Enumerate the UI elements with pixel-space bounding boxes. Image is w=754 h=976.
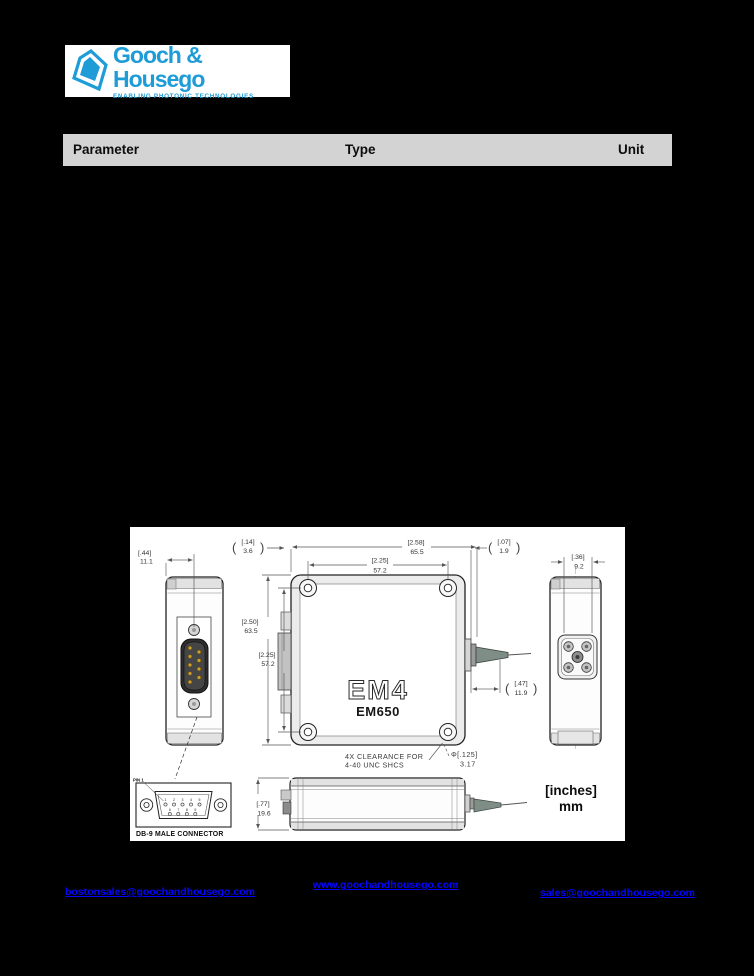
column-header-parameter: Parameter [73, 134, 139, 166]
svg-text:): ) [260, 540, 264, 555]
pin1-label: PIN 1 [133, 778, 144, 783]
hole-diameter-mm: 3.17 [460, 760, 476, 769]
dim-fiber-boot-mm: 11.9 [515, 690, 528, 697]
mechanical-drawing: [.44] 11.1 [130, 527, 625, 841]
svg-text:): ) [516, 540, 520, 555]
brand-name: Gooch & Housego [113, 43, 290, 91]
prism-diamond-icon [71, 47, 109, 96]
pin-number: 5 [199, 798, 201, 802]
dim-hole-spacing-v-mm: 57.2 [261, 661, 274, 668]
dim-body-thickness-mm: 19.6 [257, 811, 270, 818]
fiber-feedthrough-connector [558, 635, 597, 679]
pin-number: 7 [177, 808, 179, 812]
pin-number: 9 [194, 808, 196, 812]
dim-flange-protrusion: ( [.07] 1.9 ) [471, 539, 520, 639]
units-legend: [inches] mm [545, 783, 597, 814]
dim-connector-width-mm: 9.2 [574, 564, 584, 571]
side-view [281, 778, 527, 830]
dim-fiber-boot-in: [.47] [514, 681, 527, 688]
fiber-output-top-view [465, 639, 531, 671]
fiber-output-side-view [465, 795, 527, 812]
company-logo: Gooch & Housego ENABLING PHOTONIC TECHNO… [65, 45, 290, 97]
dim-lid-gap: ( [.14] 3.6 ) [232, 539, 284, 555]
end-view-fiber-side [550, 567, 601, 751]
dim-flange-protrusion-in: [.07] [497, 539, 510, 546]
units-mm: mm [559, 799, 583, 814]
top-view: EM4 EM650 [278, 575, 531, 745]
hole-diameter-callout: Φ[.125] 3.17 [444, 744, 478, 769]
svg-text:(: ( [232, 540, 237, 555]
dim-hole-spacing-v-in: [2.25] [258, 652, 275, 659]
dim-hole-spacing-h-in: [2.25] [371, 558, 388, 565]
dim-connector-width-in: [.36] [571, 554, 584, 561]
hole-diameter-in: Φ[.125] [451, 750, 478, 759]
dim-lid-gap-mm: 3.6 [243, 548, 253, 555]
dim-lid-gap-in: [.14] [241, 539, 254, 546]
dim-overall-width-mm: 65.5 [410, 549, 423, 556]
dim-flange-protrusion-mm: 1.9 [499, 548, 509, 555]
pin-number: 2 [173, 798, 175, 802]
svg-text:(: ( [488, 540, 493, 555]
dim-fiber-boot-length: ( [.47] 11.9 ) [471, 660, 537, 697]
clearance-note: 4X CLEARANCE FOR 4-40 UNC SHCS [345, 743, 443, 770]
footer-website-link[interactable]: www.goochandhousego.com [313, 879, 458, 891]
pin-number: 6 [169, 808, 171, 812]
column-header-type: Type [345, 134, 376, 166]
page: { "logo": { "brand": "Gooch & Housego", … [0, 0, 754, 976]
table-header-row: Parameter Type Unit [63, 134, 672, 166]
pin-number: 4 [190, 798, 192, 802]
dim-connector-offset-in: [.44] [138, 550, 151, 557]
db9-connector-label: DB-9 MALE CONNECTOR [136, 831, 224, 838]
brand-tagline: ENABLING PHOTONIC TECHNOLOGIES [113, 93, 290, 100]
model-label: EM650 [356, 704, 400, 719]
pin-number: 3 [182, 798, 184, 802]
end-view-connector-side [166, 577, 223, 745]
footer-email-link[interactable]: bostonsales@goochandhousego.com [65, 886, 255, 898]
dim-hole-spacing-h-mm: 57.2 [373, 568, 386, 575]
svg-text:): ) [533, 681, 537, 696]
svg-text:(: ( [505, 681, 510, 696]
dim-connector-offset-mm: 11.1 [140, 559, 153, 566]
clearance-note-line2: 4-40 UNC SHCS [345, 761, 404, 770]
footer-sales-email-link[interactable]: sales@goochandhousego.com [540, 887, 695, 899]
dim-body-thickness-in: [.77] [256, 801, 269, 808]
dim-overall-width-in: [2.58] [407, 540, 424, 547]
pin-number: 1 [165, 798, 167, 802]
units-inches: [inches] [545, 783, 597, 798]
pin-number: 8 [186, 808, 188, 812]
dim-overall-height-mm: 63.5 [244, 628, 257, 635]
column-header-unit: Unit [618, 134, 644, 166]
dim-overall-height-in: [2.50] [241, 619, 258, 626]
db9-connector-top-view [278, 612, 291, 713]
product-label: EM4 [347, 675, 409, 705]
